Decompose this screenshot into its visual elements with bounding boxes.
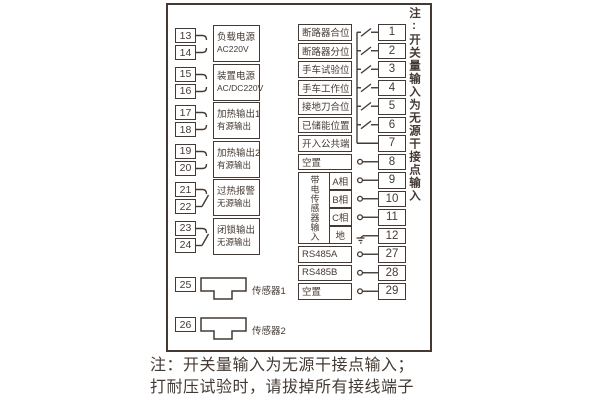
terminal-4: 4 <box>378 80 406 97</box>
label-text: 过热报警 <box>217 186 259 198</box>
label-text: 负载电源 <box>217 32 259 44</box>
label-ground-knife: 接地刀合位 <box>298 98 352 115</box>
no-contact-icon <box>357 29 378 129</box>
label-phase-c: C相 <box>329 208 353 226</box>
label-breaker-open: 断路器分位 <box>298 43 352 60</box>
footer-note: 注：开关量输入为无源干接点输入； 打耐压试验时，请拔掉所有接线端子 <box>150 355 414 399</box>
terminal-18: 18 <box>175 122 196 137</box>
terminal-6: 6 <box>378 117 406 134</box>
label-earth: 地 <box>329 226 353 244</box>
terminal-1: 1 <box>378 24 406 41</box>
label-overheat-alarm: 过热报警 无源输出 <box>213 179 260 216</box>
label-spare-29: 空置 <box>298 283 352 300</box>
live-sensor-input-group: 带电传感器输入 <box>298 172 330 244</box>
label-text: 有源输出 <box>217 160 259 171</box>
terminal-22: 22 <box>175 199 196 214</box>
no-contact-icon <box>196 221 213 253</box>
terminal-25: 25 <box>175 277 196 292</box>
terminal-10: 10 <box>378 191 406 208</box>
plug-connector-icon <box>196 144 213 176</box>
ground-icon <box>357 236 379 243</box>
terminal-5: 5 <box>378 98 406 115</box>
label-text: 装置电源 <box>217 71 259 83</box>
label-text: AC220V <box>217 44 259 55</box>
terminal-20: 20 <box>175 161 196 176</box>
terminal-14: 14 <box>175 45 196 60</box>
terminal-3: 3 <box>378 61 406 78</box>
live-sensor-input-label: 带电传感器输入 <box>310 175 319 242</box>
terminal-8: 8 <box>378 154 406 171</box>
terminal-29: 29 <box>378 283 406 300</box>
label-text: 有源输出 <box>217 121 259 132</box>
terminal-12: 12 <box>378 228 406 245</box>
terminal-26: 26 <box>175 317 196 332</box>
label-text: AC/DC220V <box>217 83 259 94</box>
label-trolley-test: 手车试验位 <box>298 61 352 78</box>
label-text: 加热输出2 <box>217 148 259 160</box>
terminal-19: 19 <box>175 144 196 159</box>
label-load-power: 负载电源 AC220V <box>213 25 260 62</box>
label-heat-output-1: 加热输出1 有源输出 <box>213 102 260 139</box>
terminal-7: 7 <box>378 135 406 152</box>
terminal-21: 21 <box>175 182 196 197</box>
no-contact-icon <box>196 182 213 214</box>
right-connectors <box>352 20 378 310</box>
plug-connector-icon <box>196 105 213 137</box>
terminal-11: 11 <box>378 209 406 226</box>
label-device-power: 装置电源 AC/DC220V <box>213 64 260 101</box>
terminal-28: 28 <box>378 265 406 282</box>
terminal-2: 2 <box>378 43 406 60</box>
label-lockout-output: 闭锁输出 无源输出 <box>213 218 260 255</box>
terminal-24: 24 <box>175 238 196 253</box>
label-text: 无源输出 <box>217 237 259 248</box>
terminal-17: 17 <box>175 105 196 120</box>
label-rs485a: RS485A <box>298 246 352 263</box>
label-heat-output-2: 加热输出2 有源输出 <box>213 141 260 178</box>
sensor-plug-icon <box>200 316 250 342</box>
footer-note-line1: 注：开关量输入为无源干接点输入； <box>150 355 414 377</box>
plug-connector-icon <box>196 67 213 99</box>
label-trolley-work: 手车工作位 <box>298 80 352 97</box>
label-phase-a: A相 <box>329 172 353 190</box>
footer-note-line2: 打耐压试验时，请拔掉所有接线端子 <box>150 377 414 399</box>
label-text: 无源输出 <box>217 198 259 209</box>
terminal-15: 15 <box>175 67 196 82</box>
label-text: 闭锁输出 <box>217 225 259 237</box>
terminal-9: 9 <box>378 172 406 189</box>
plug-connector-icon <box>196 28 213 60</box>
terminal-13: 13 <box>175 28 196 43</box>
side-note: 注:开关量输入为无源干接点输入 <box>406 7 422 347</box>
label-spare-8: 空置 <box>298 154 352 171</box>
terminal-16: 16 <box>175 84 196 99</box>
label-energy-stored: 已储能位置 <box>298 117 352 134</box>
sensor-plug-icon <box>200 276 250 302</box>
label-input-common: 开入公共端 <box>298 135 352 152</box>
terminal-23: 23 <box>175 221 196 236</box>
label-phase-b: B相 <box>329 190 353 208</box>
terminal-27: 27 <box>378 246 406 263</box>
sensor-1-label: 传感器1 <box>252 283 286 297</box>
label-rs485b: RS485B <box>298 265 352 282</box>
label-text: 加热输出1 <box>217 109 259 121</box>
terminal-wiring-diagram: 13 14 15 16 17 18 19 20 21 22 23 24 负载电源… <box>0 0 600 400</box>
label-breaker-closed: 断路器合位 <box>298 24 352 41</box>
sensor-2-label: 传感器2 <box>252 323 286 337</box>
terminal-node-icon <box>358 159 378 293</box>
